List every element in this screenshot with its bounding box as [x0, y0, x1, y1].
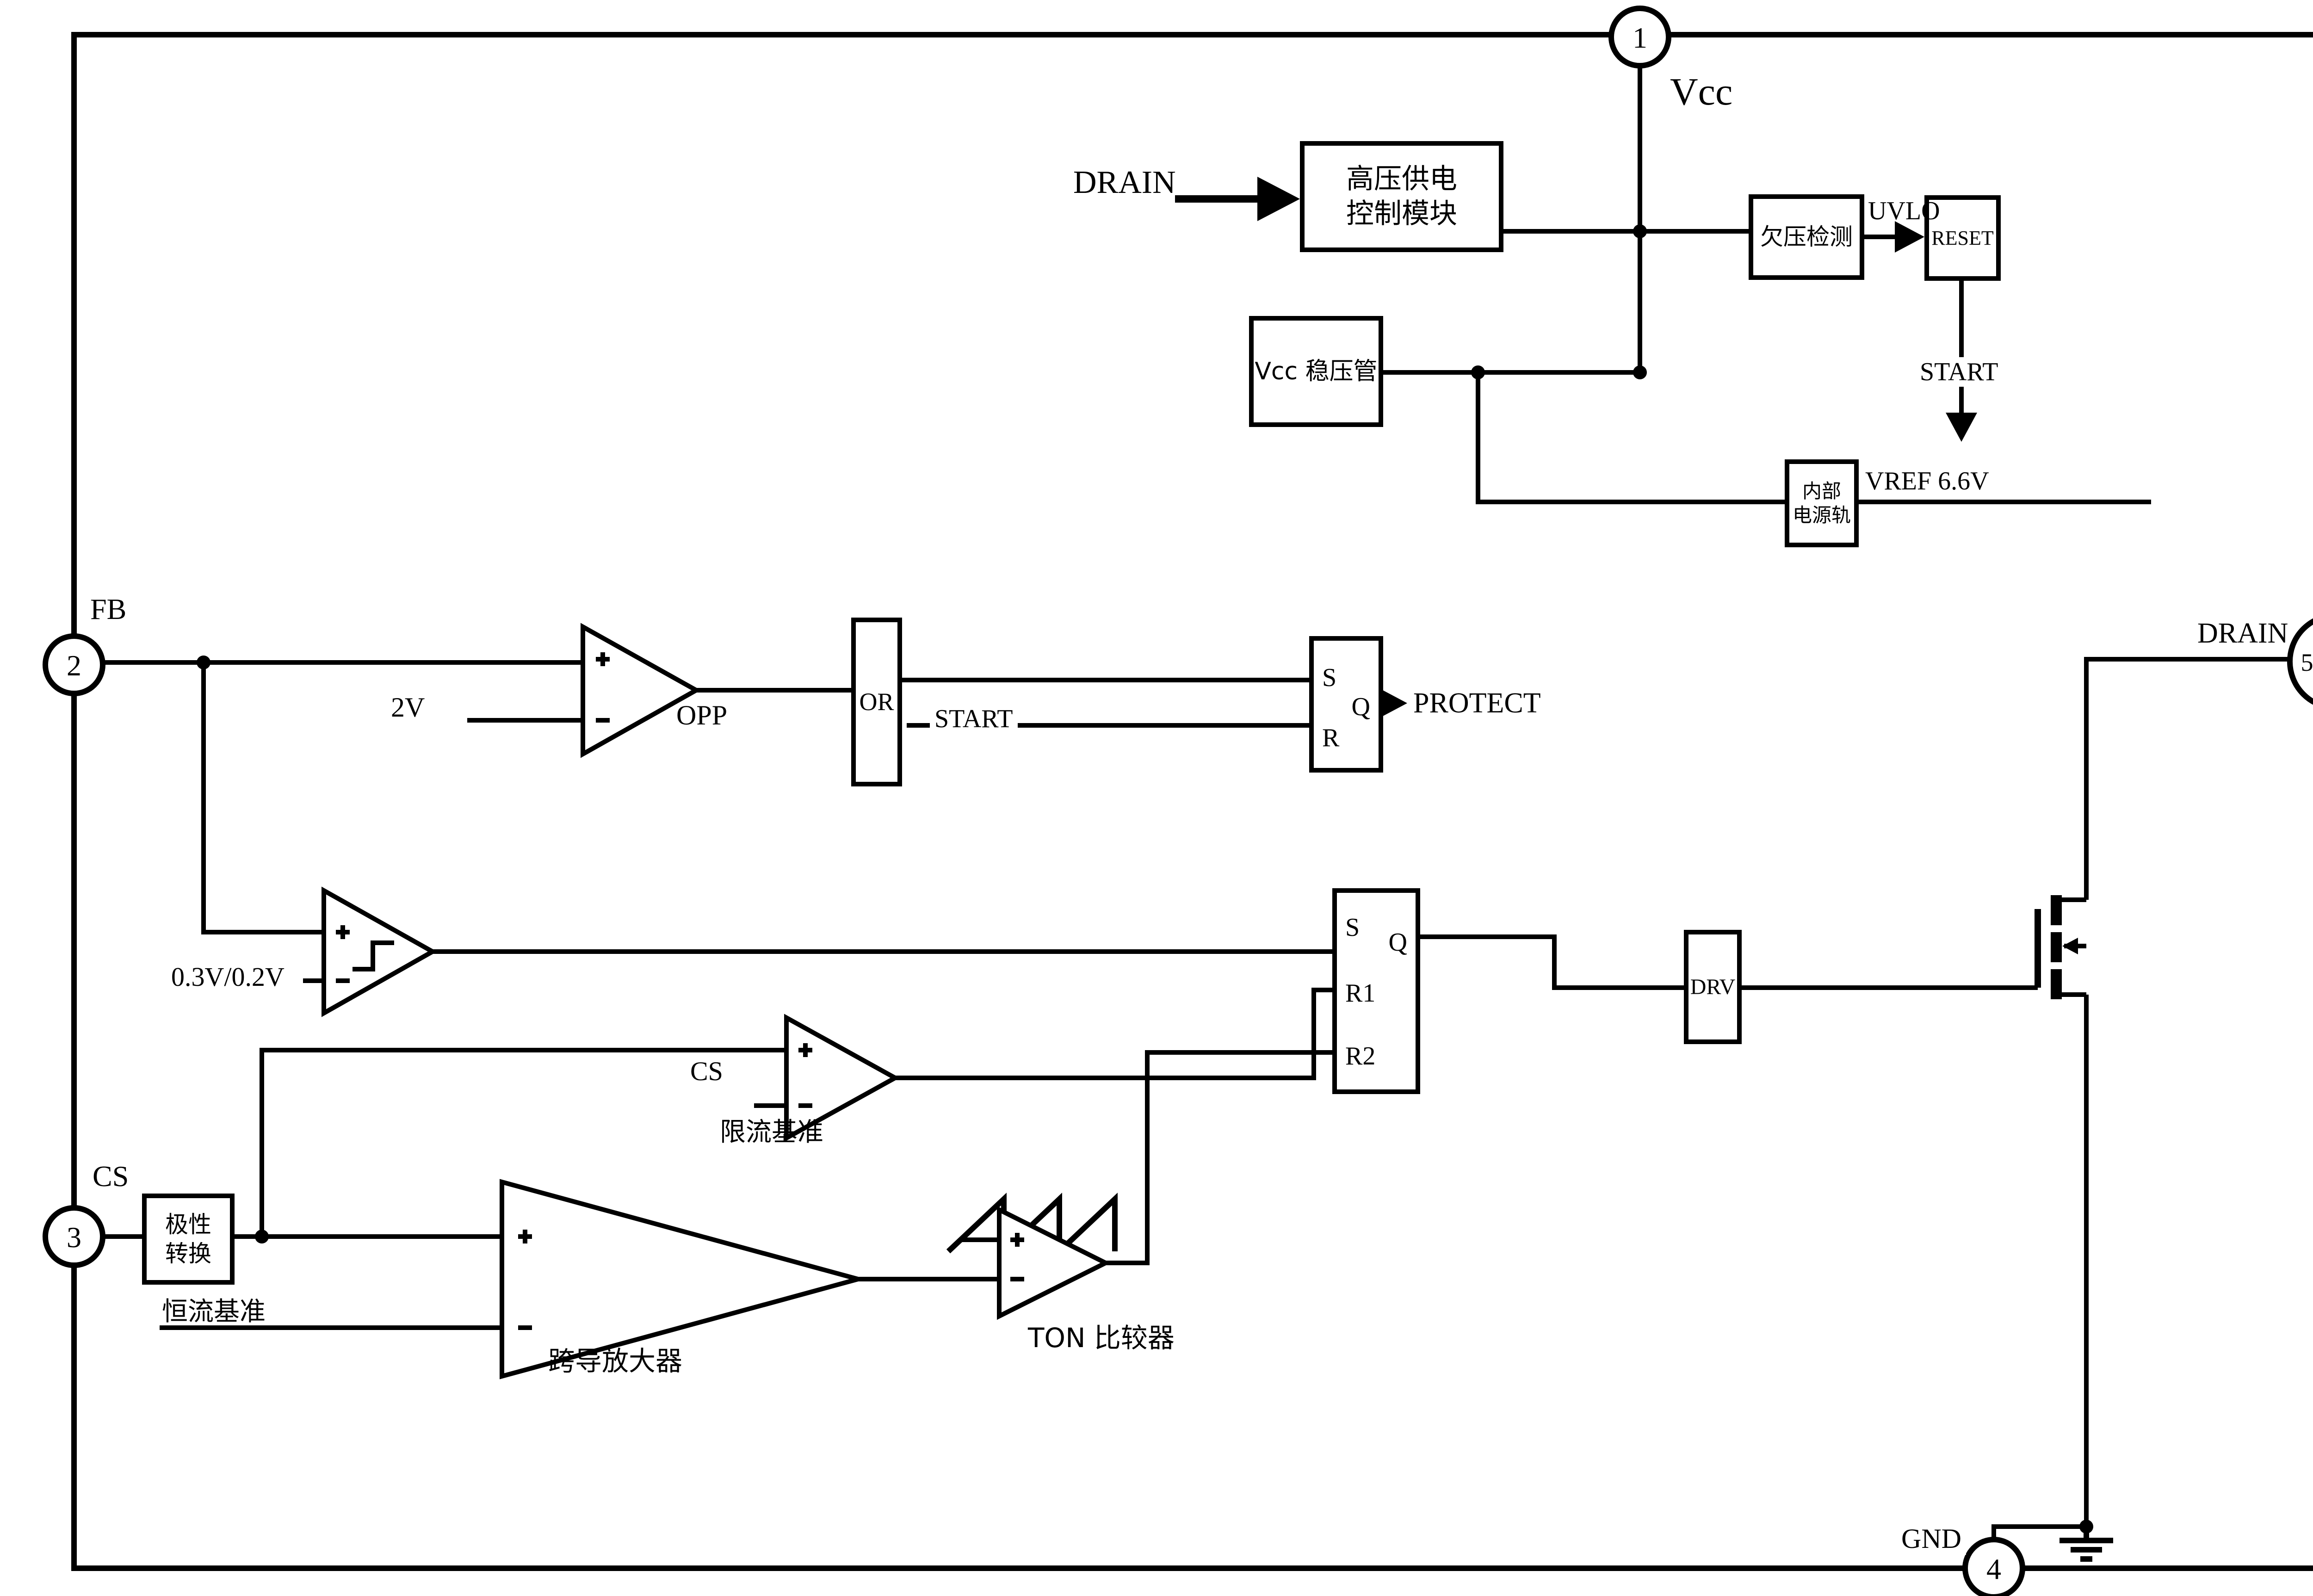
label-constant-current-ref: 恒流基准 — [162, 1291, 266, 1328]
label-ton-comparator: TON 比较器 — [1028, 1316, 1175, 1355]
label-vcc: Vcc — [1670, 69, 1732, 114]
block-undervoltage-detect: 欠压检测 — [1749, 194, 1864, 280]
latch1-r-label: R — [1322, 722, 1339, 754]
mosfet-body-arrow-icon — [2062, 938, 2078, 954]
pin-drain-number: 5/6/7/8 — [2301, 648, 2313, 677]
comparator-hysteresis — [324, 891, 433, 1013]
latch2-q-label: Q — [1389, 926, 1407, 959]
label-protect: PROTECT — [1413, 687, 1541, 720]
pin-cs-number: 3 — [67, 1220, 81, 1255]
label-start-top: START — [1915, 357, 2003, 387]
label-current-limit-ref: 限流基准 — [720, 1111, 823, 1149]
wire-limit-to-r1 — [895, 990, 1332, 1078]
block-vcc-regulator: Vcc 稳压管 — [1249, 316, 1383, 427]
start-arrow-icon — [1946, 413, 1977, 442]
drain-in-arrow-icon — [1257, 177, 1300, 221]
label-cs-pin: CS — [93, 1159, 129, 1194]
wire-fb-branch — [204, 662, 324, 932]
pin-gnd-number: 4 — [1986, 1552, 2001, 1586]
label-drain-right: DRAIN — [2197, 617, 2288, 650]
block-diagram: 高压供电 控制模块 Vcc 稳压管 欠压检测 RESET 内部 电源轨 OR D… — [0, 0, 2313, 1596]
label-cs-sense: CS — [690, 1056, 723, 1087]
block-hv-supply-module: 高压供电 控制模块 — [1300, 141, 1503, 252]
wire-to-internal-rail — [1478, 372, 1785, 502]
label-hysteresis-threshold: 0.3V/0.2V — [171, 961, 284, 992]
pin-fb-number: 2 — [67, 649, 81, 683]
label-2v: 2V — [391, 692, 425, 724]
block-drv: DRV — [1684, 930, 1742, 1044]
latch1-s-label: S — [1322, 662, 1336, 694]
latch2-r2-label: R2 — [1345, 1040, 1375, 1072]
uvlo-arrow-icon — [1895, 221, 1924, 253]
label-fb: FB — [90, 592, 126, 626]
label-gnd: GND — [1897, 1523, 1966, 1555]
label-drain-input: DRAIN — [1073, 164, 1176, 201]
mosfet — [2038, 895, 2086, 999]
label-vref: VREF 6.6V — [1865, 466, 1989, 496]
latch-pwm: S R1 R2 Q — [1332, 888, 1420, 1094]
wire-ton-to-r2 — [1106, 1052, 1332, 1263]
latch-protect: S R Q — [1309, 636, 1383, 773]
latch2-s-label: S — [1345, 911, 1360, 944]
block-or-gate: OR — [851, 618, 902, 786]
block-internal-rail: 内部 电源轨 — [1785, 459, 1859, 547]
label-start-mid: START — [930, 704, 1018, 734]
pin-vcc-number: 1 — [1633, 21, 1647, 55]
wire-q-to-drv — [1420, 937, 1684, 988]
latch2-r1-label: R1 — [1345, 977, 1375, 1009]
block-polarity-convert: 极性 转换 — [142, 1194, 235, 1285]
label-uvlo: UVLO — [1868, 196, 1940, 226]
comparator-2v — [583, 627, 696, 754]
wire-drain-rail — [2086, 659, 2290, 900]
latch1-q-label: Q — [1352, 691, 1370, 723]
label-opp: OPP — [676, 699, 727, 731]
label-gm-amplifier: 跨导放大器 — [548, 1339, 682, 1378]
